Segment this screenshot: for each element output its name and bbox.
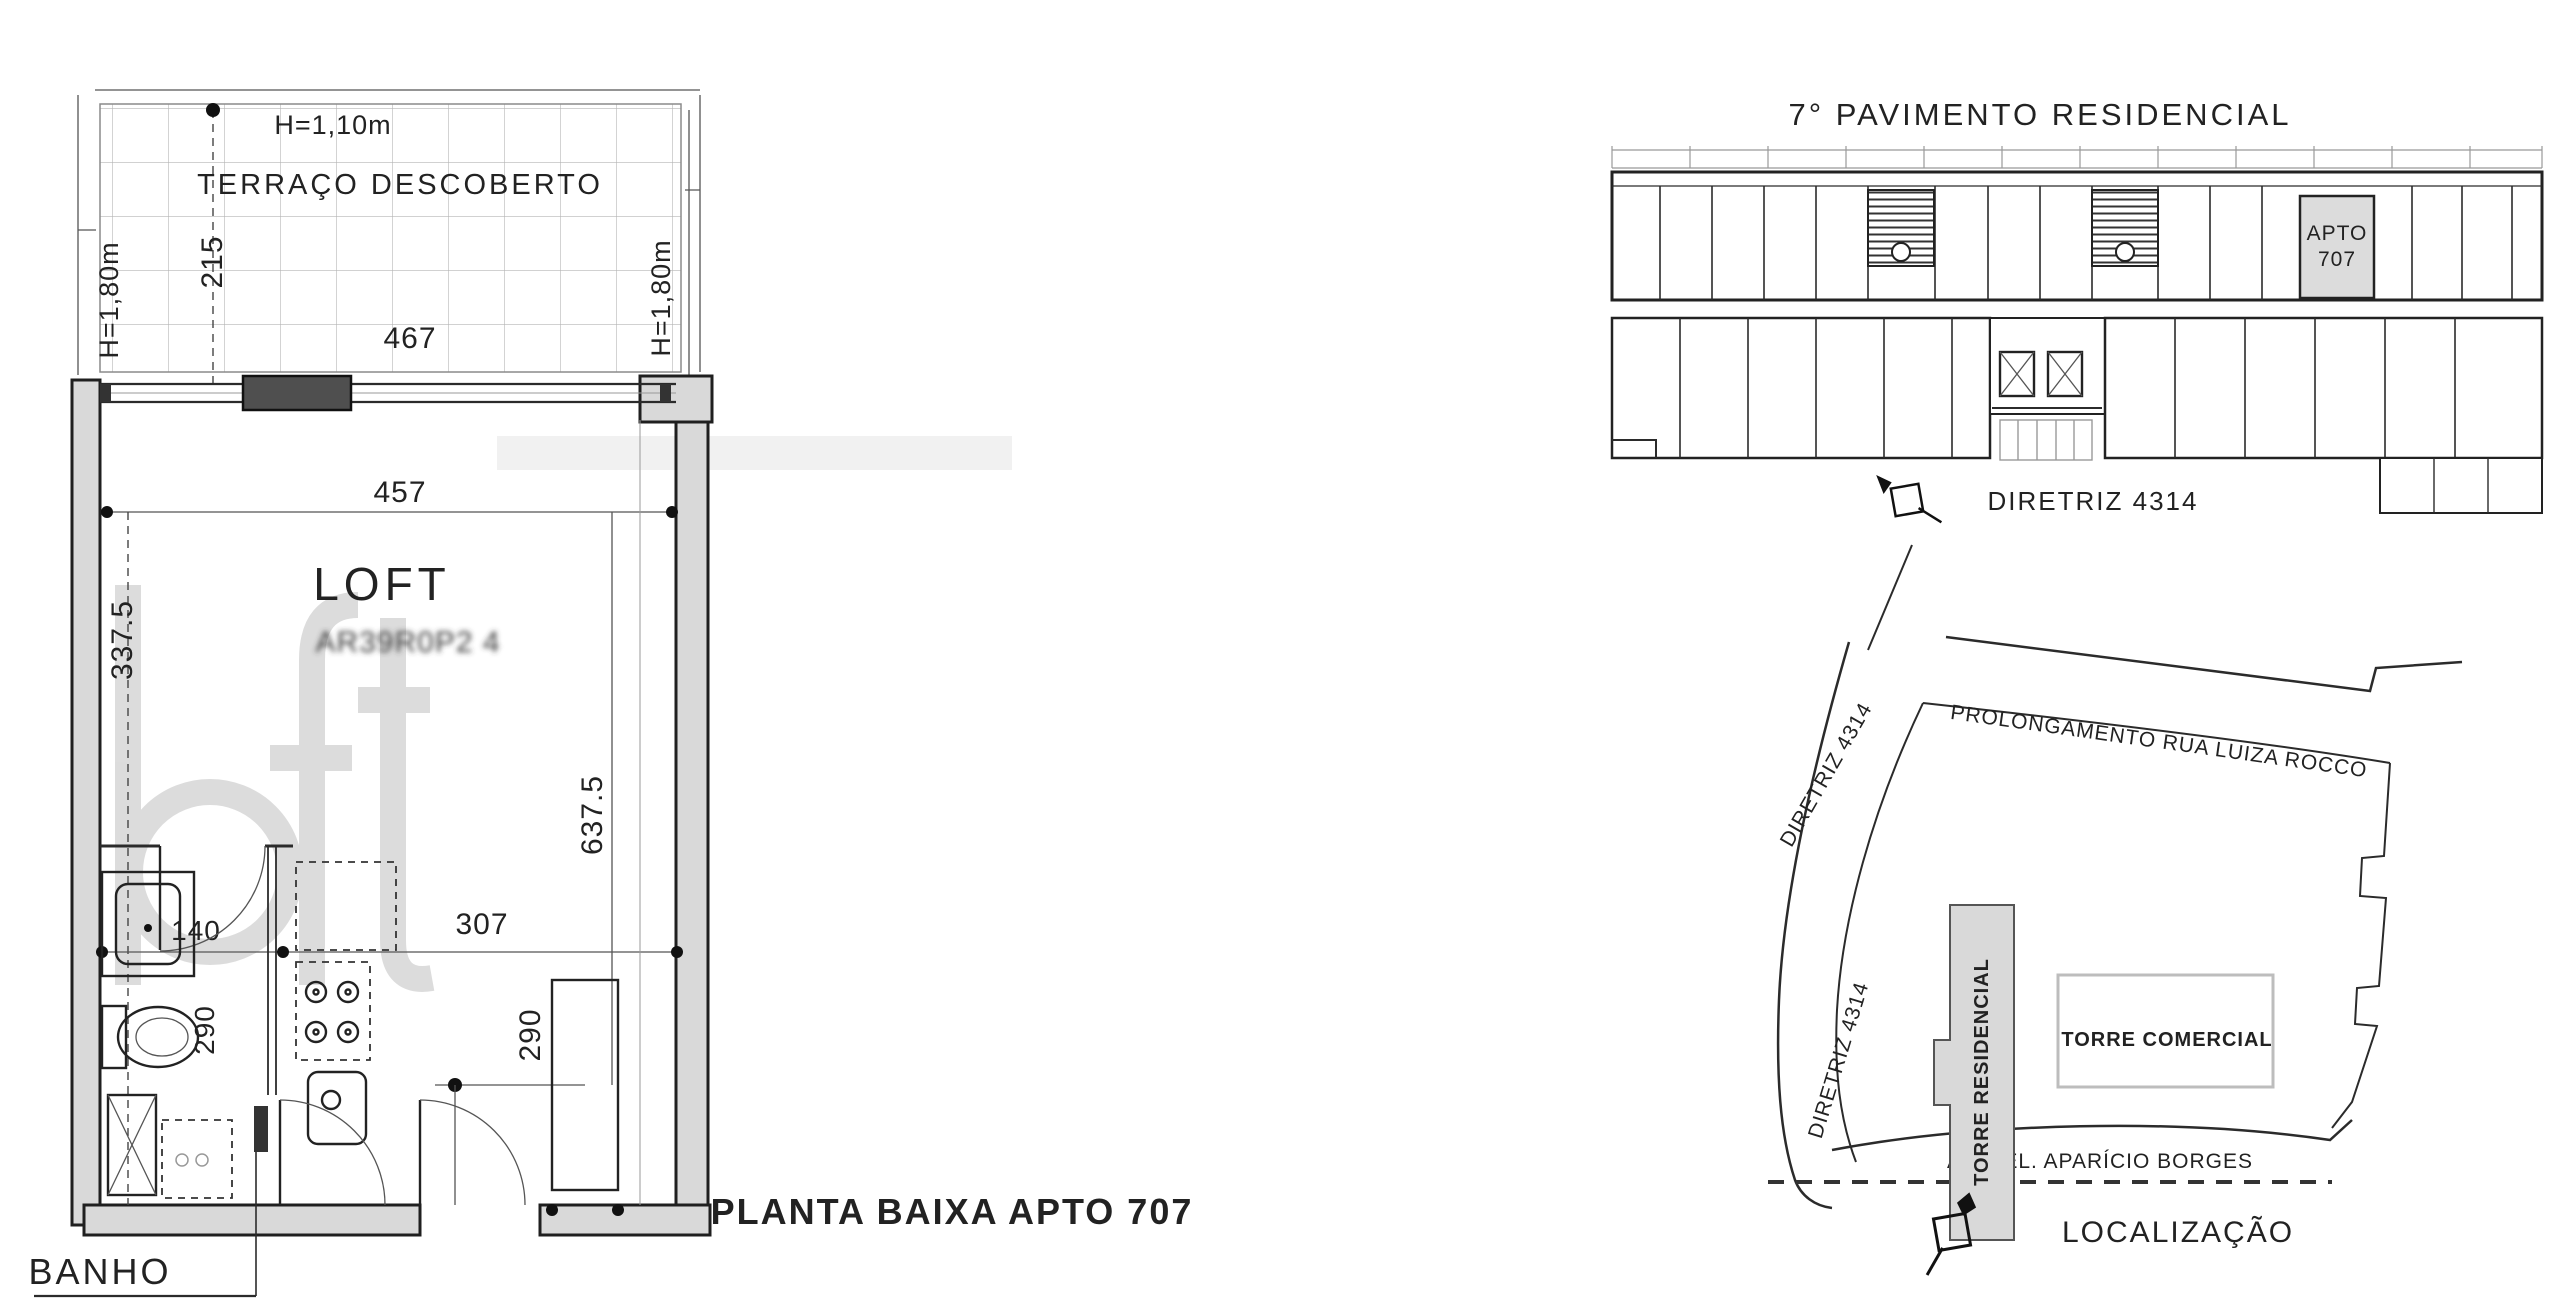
diretriz-axis: DIRETRIZ 4314 [1868, 465, 2198, 650]
residential-tower-label: TORRE RESIDENCIAL [1971, 958, 1993, 1186]
floor-diagram-title: 7° PAVIMENTO RESIDENCIAL [1788, 97, 2291, 132]
diretriz-4314-label: DIRETRIZ 4314 [1988, 486, 2199, 516]
loft-area-blurred-text: AR39R0P2 4 [315, 626, 500, 659]
terrace-height-left: H=1,80m [94, 241, 124, 358]
floor-diagram-7-pavimento: 7° PAVIMENTO RESIDENCIAL APTO 707 [1612, 97, 2542, 650]
dim-140: 140 [171, 915, 221, 946]
banho-label: BANHO [28, 1251, 171, 1292]
floor-plan-apto-707: H=1,10m TERRAÇO DESCOBERTO 215 H=1,80m H… [28, 90, 1193, 1296]
dim-637-5: 637.5 [576, 775, 609, 855]
apto-707-label-line2: 707 [2318, 248, 2356, 271]
stove-burners [306, 982, 358, 1042]
dim-337-5: 337.5 [106, 600, 139, 680]
terrace: H=1,10m TERRAÇO DESCOBERTO 215 H=1,80m H… [78, 90, 700, 397]
terrace-parapet-height: H=1,10m [274, 110, 391, 140]
localizacao-label: LOCALIZAÇÃO [2062, 1215, 2294, 1249]
loft-label: LOFT [313, 558, 451, 610]
bottom-unit-band [1612, 318, 2542, 513]
map-roads [1768, 637, 2462, 1208]
entry-door-swing [420, 1100, 525, 1205]
north-symbol-diretriz [1876, 465, 1941, 532]
toilet-tank [102, 1006, 126, 1068]
site-boundary [2332, 763, 2390, 1128]
dim-457: 457 [373, 476, 426, 509]
location-map: PROLONGAMENTO RUA LUIZA ROCCO DIRETRIZ 4… [1768, 637, 2462, 1275]
dark-door-jamb [254, 1106, 268, 1152]
map-buildings: TORRE RESIDENCIAL TORRE COMERCIAL [1934, 905, 2273, 1240]
plan-caption: PLANTA BAIXA APTO 707 [711, 1191, 1194, 1232]
toilet-bowl [118, 1007, 198, 1067]
dim-215: 215 [196, 235, 229, 288]
terrace-height-right: H=1,80m [646, 239, 676, 356]
commercial-tower-label: TORRE COMERCIAL [2061, 1029, 2272, 1051]
street-prolongamento-label: PROLONGAMENTO RUA LUIZA ROCCO [1949, 701, 2369, 782]
window-panel [243, 376, 351, 410]
terrace-label: TERRAÇO DESCOBERTO [197, 169, 603, 201]
loft-watermark [128, 436, 1012, 985]
balcony-strip [1612, 146, 2542, 168]
dim-290-bath: 290 [189, 1005, 220, 1055]
diretriz-lower-label: DIRETRIZ 4314 [1804, 979, 1873, 1141]
dim-467: 467 [383, 322, 436, 355]
dim-307: 307 [455, 908, 508, 941]
top-unit-band: APTO 707 [1612, 172, 2542, 300]
kitchen [280, 862, 396, 1205]
apto-707-label-line1: APTO [2307, 222, 2368, 245]
apto-707-unit [2300, 196, 2374, 298]
offset-lower-block [2380, 458, 2542, 513]
washer-dashed [162, 1120, 232, 1198]
dim-290-hall: 290 [514, 1008, 547, 1061]
kitchen-door-swing [280, 1100, 385, 1205]
architectural-drawing-sheet: { "plan": { "caption": "PLANTA BAIXA APT… [0, 0, 2560, 1316]
baluster-grid [2000, 420, 2092, 460]
watermark-smudge-band [497, 436, 1012, 470]
